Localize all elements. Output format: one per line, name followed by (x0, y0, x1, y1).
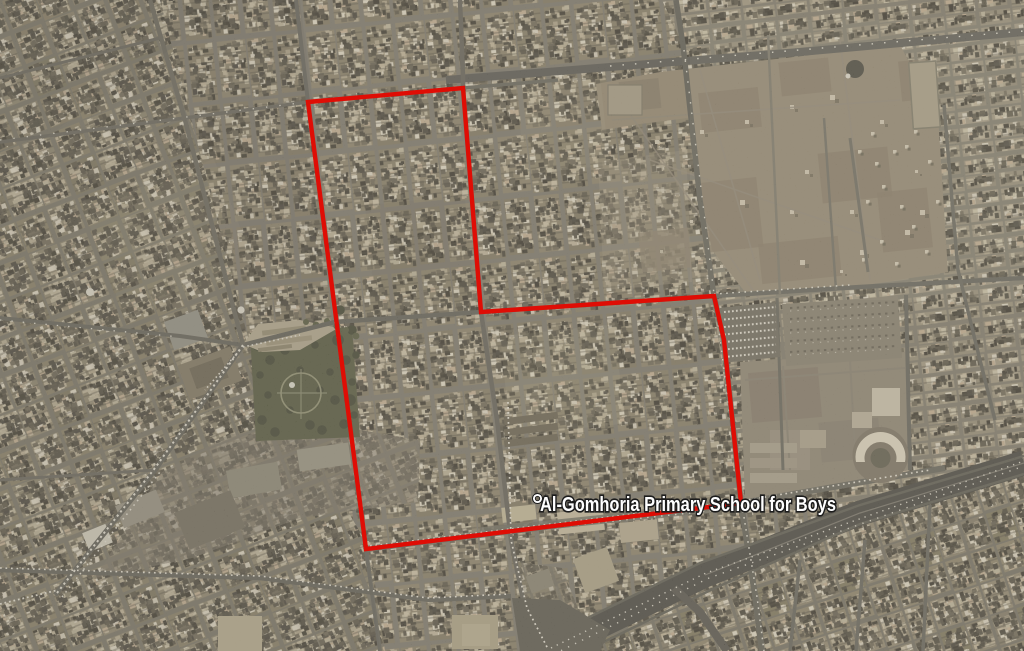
svg-text:Al-Gomhoria Primary School for: Al-Gomhoria Primary School for Boys (540, 494, 836, 516)
